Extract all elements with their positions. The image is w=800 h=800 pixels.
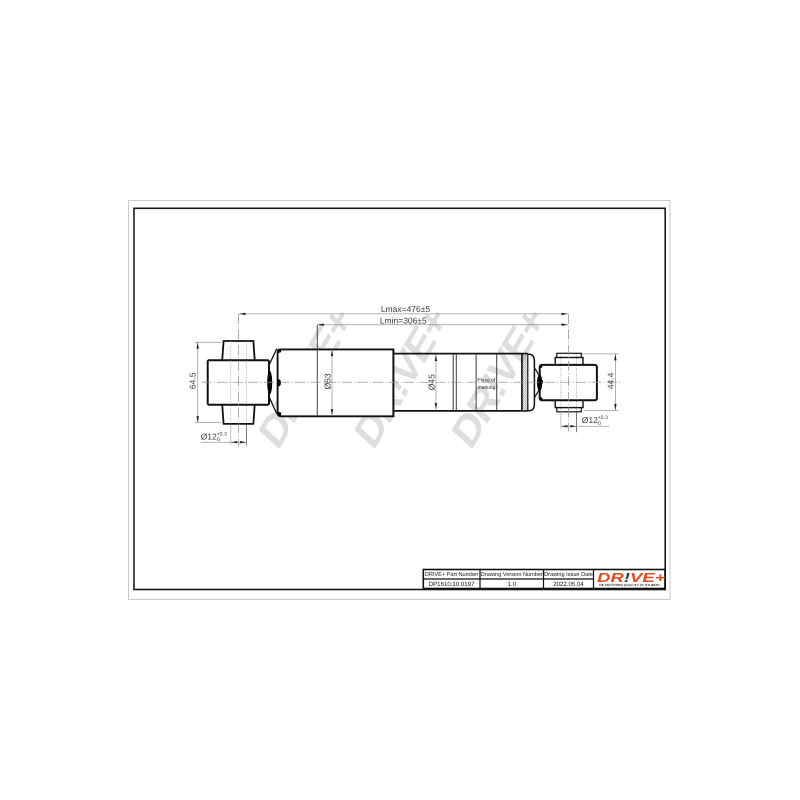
svg-text:OE MATCHING QUALITY AT ITS BES: OE MATCHING QUALITY AT ITS BEST — [599, 583, 661, 587]
